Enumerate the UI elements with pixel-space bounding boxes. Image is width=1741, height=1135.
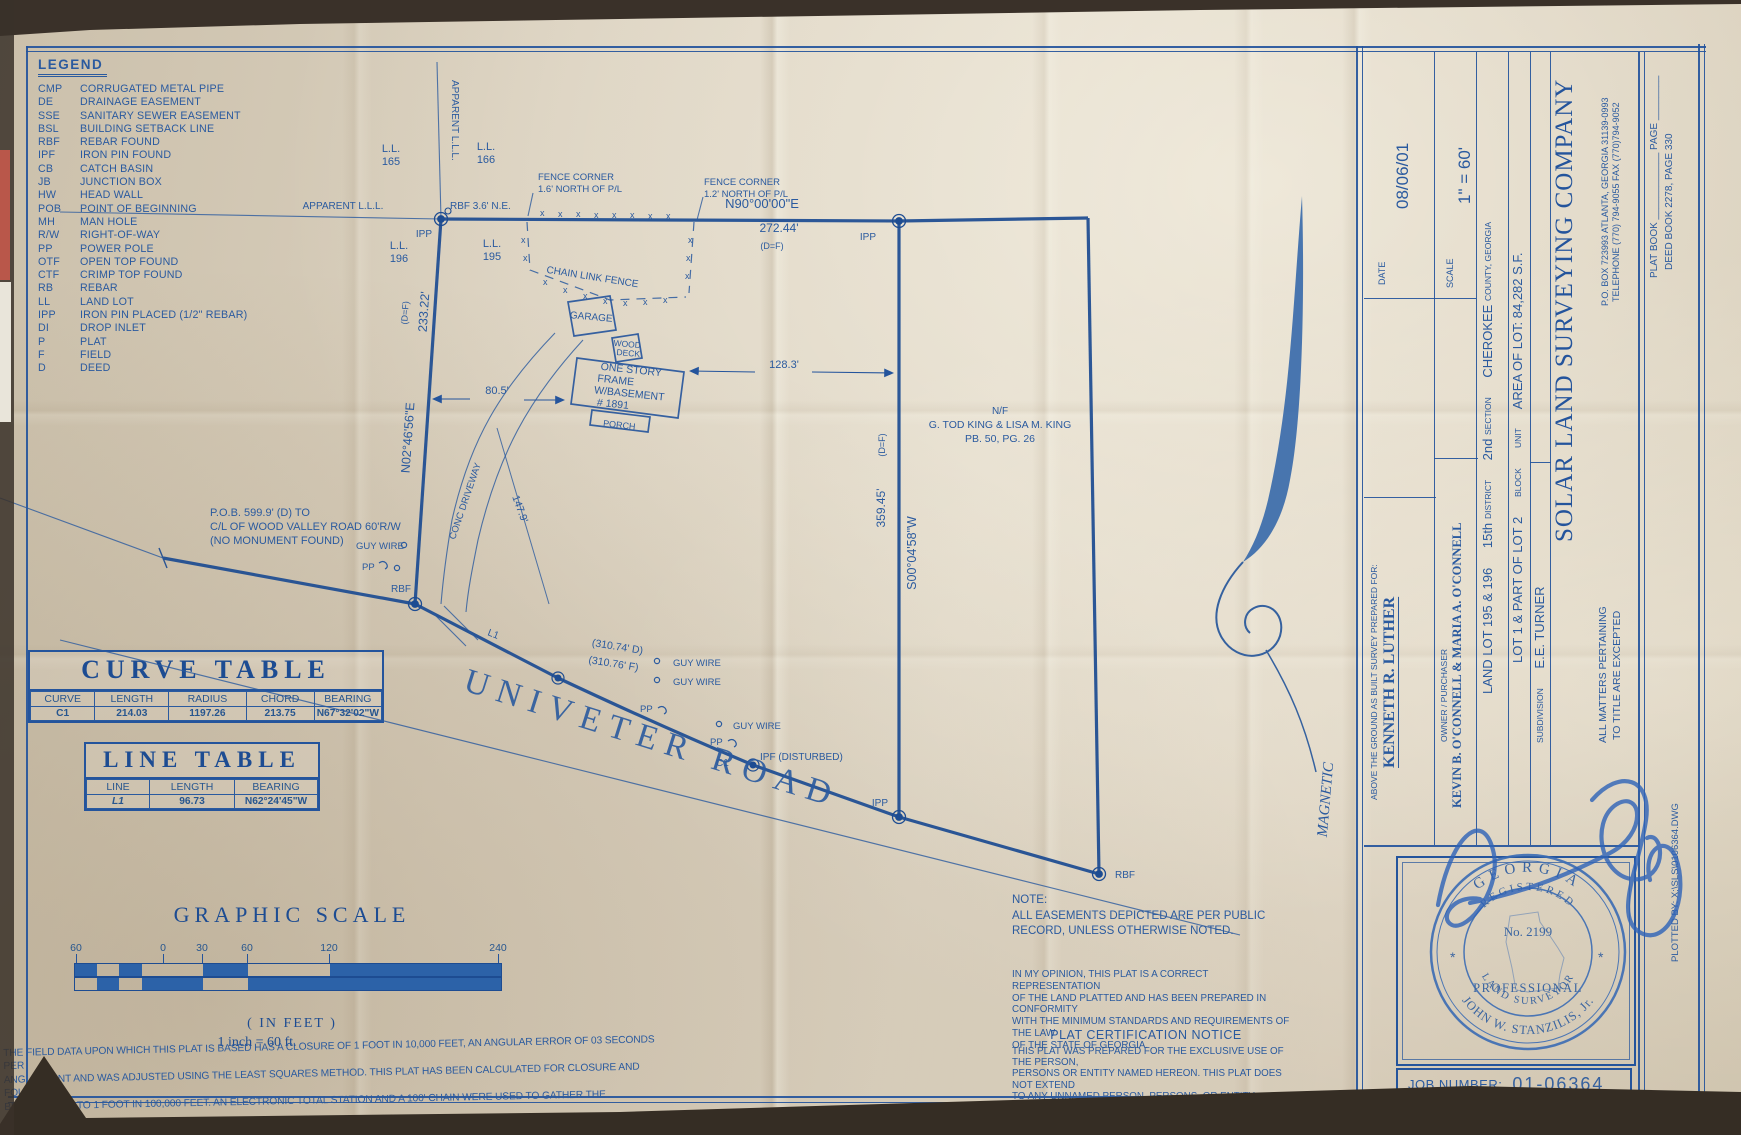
stamp-star-right: * xyxy=(1598,949,1604,965)
svg-text:x: x xyxy=(688,235,693,245)
label-l1: L1 xyxy=(486,628,501,642)
svg-text:x: x xyxy=(630,210,635,220)
label-fence-corner: FENCE CORNER xyxy=(538,172,614,183)
label-dim-147: 147.9' xyxy=(509,494,530,525)
label-dim-128: 128.3' xyxy=(769,359,799,371)
label-ll: L.L. xyxy=(483,238,501,250)
label-fence-corner: FENCE CORNER xyxy=(704,177,780,188)
label-lot195: 195 xyxy=(483,251,501,263)
label-lot165: 165 xyxy=(382,156,400,168)
label-apparent-lll: APPARENT L.L.L. xyxy=(303,201,384,212)
svg-text:x: x xyxy=(576,209,581,219)
background-object-white xyxy=(0,282,11,422)
label-bearing-east: S00°04'58"W xyxy=(905,516,919,590)
label-pob2: C/L OF WOOD VALLEY ROAD 60'R/W xyxy=(210,521,401,533)
label-adjoiner-ref: PB. 50, PG. 26 xyxy=(965,433,1035,445)
surveyor-stamp: GEORGIA REGISTERED No. 2199 PROFESSIONAL… xyxy=(1431,855,1625,1049)
svg-text:x: x xyxy=(543,277,548,287)
label-pp: PP xyxy=(640,704,653,715)
label-ll: L.L. xyxy=(382,143,400,155)
label-house: ONE STORY FRAME W/BASEMENT # 1891 xyxy=(592,360,668,415)
svg-text:x: x xyxy=(521,235,526,245)
label-ll: L.L. xyxy=(477,141,495,153)
svg-text:x: x xyxy=(663,295,668,305)
stamp-number: No. 2199 xyxy=(1504,924,1552,939)
label-guy-wire: GUY WIRE xyxy=(356,541,404,552)
svg-text:x: x xyxy=(540,208,545,218)
label-garage: GARAGE xyxy=(569,310,613,325)
label-magnetic: MAGNETIC xyxy=(1315,761,1338,839)
svg-text:x: x xyxy=(583,291,588,301)
label-road-name: UNIVETER ROAD xyxy=(460,662,845,815)
background-object-red xyxy=(0,150,10,280)
label-guy-wire: GUY WIRE xyxy=(733,721,781,732)
label-ll: L.L. xyxy=(390,240,408,252)
drawing-labels: APPARENT L.L.L. APPARENT L.L.L. L.L. 165… xyxy=(210,80,1135,881)
plat-drawing: xx xx xx xx xx xx xx xx x xx x APPARENT … xyxy=(0,0,1741,1135)
svg-text:x: x xyxy=(523,253,528,263)
driveway-lines xyxy=(441,333,583,612)
label-dist-north: 272.44' xyxy=(760,221,799,235)
label-dist-west: 233.22' xyxy=(416,291,433,333)
label-lot196: 196 xyxy=(390,253,408,265)
label-dist-east: 359.45' xyxy=(874,489,888,528)
label-dist-road-d: (310.74' D) xyxy=(591,637,644,657)
svg-text:x: x xyxy=(643,297,648,307)
signature xyxy=(1438,781,1680,935)
label-rbf: RBF xyxy=(391,584,411,595)
label-rbf: RBF xyxy=(1115,870,1135,881)
svg-text:x: x xyxy=(603,296,608,306)
svg-text:# 1891: # 1891 xyxy=(596,397,629,412)
svg-text:x: x xyxy=(612,210,617,220)
label-ipp: IPP xyxy=(860,232,876,243)
label-apparent-lll-vertical: APPARENT L.L.L. xyxy=(449,80,460,161)
fence-x-marks: xx xx xx xx xx xx xx xx x xx x xyxy=(521,208,693,308)
svg-text:x: x xyxy=(594,210,599,220)
label-ipp: IPP xyxy=(416,229,432,240)
label-def: (D=F) xyxy=(760,241,783,251)
label-deck: DECK xyxy=(616,347,641,359)
label-def: (D=F) xyxy=(399,301,411,325)
chain-link-fence-lines xyxy=(527,222,694,300)
svg-text:x: x xyxy=(563,285,568,295)
label-bearing-west: N02°46'56"E xyxy=(399,402,418,474)
label-dim-80: 80.5' xyxy=(485,385,509,397)
label-dist-road-f: (310.76' F) xyxy=(588,654,640,674)
label-pob3: (NO MONUMENT FOUND) xyxy=(210,535,344,547)
label-porch: PORCH xyxy=(603,418,636,431)
label-pob1: P.O.B. 599.9' (D) TO xyxy=(210,507,310,519)
svg-text:x: x xyxy=(686,253,691,263)
svg-text:x: x xyxy=(666,211,671,221)
label-def: (D=F) xyxy=(877,433,887,456)
label-bearing-north: N90°00'00"E xyxy=(725,196,799,211)
stamp-star-left: * xyxy=(1450,949,1456,965)
svg-text:x: x xyxy=(648,211,653,221)
label-pp: PP xyxy=(362,562,375,573)
north-arrow: MAGNETIC xyxy=(1216,196,1337,839)
label-ipp: IPP xyxy=(872,798,888,809)
svg-text:x: x xyxy=(623,298,628,308)
label-chain-link-fence: CHAIN LINK FENCE xyxy=(546,265,640,290)
label-guy-wire: GUY WIRE xyxy=(673,677,721,688)
svg-text:x: x xyxy=(558,209,563,219)
survey-plat-scan: xx xx xx xx xx xx xx xx x xx x APPARENT … xyxy=(0,0,1741,1135)
label-guy-wire: GUY WIRE xyxy=(673,658,721,669)
label-nf: N/F xyxy=(992,406,1008,417)
svg-text:x: x xyxy=(685,271,690,281)
label-lot166: 166 xyxy=(477,154,495,166)
label-fc1-offset: 1.6' NORTH OF P/L xyxy=(538,184,622,195)
label-rbf-ne: RBF 3.6' N.E. xyxy=(450,201,511,212)
label-adjoiner: G. TOD KING & LISA M. KING xyxy=(929,419,1072,431)
